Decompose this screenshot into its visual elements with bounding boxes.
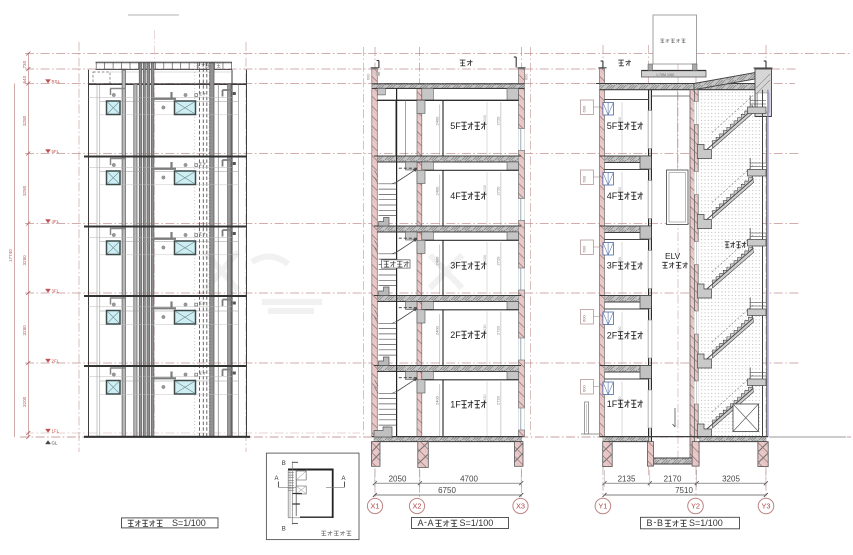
svg-text:3280: 3280 — [22, 325, 27, 336]
svg-text:2400: 2400 — [435, 325, 440, 335]
svg-text:5F: 5F — [450, 121, 461, 131]
svg-text:600: 600 — [582, 245, 587, 252]
svg-text:2720: 2720 — [496, 186, 501, 196]
svg-text:600: 600 — [582, 175, 587, 182]
svg-text:RSL: RSL — [52, 79, 61, 84]
svg-text:X2: X2 — [412, 501, 421, 510]
svg-text:B: B — [647, 518, 653, 528]
svg-text:640: 640 — [22, 75, 27, 83]
svg-text:17740: 17740 — [8, 249, 13, 262]
svg-text:A: A — [342, 476, 346, 482]
svg-text:2170: 2170 — [664, 475, 682, 484]
svg-text:Y1: Y1 — [598, 501, 607, 510]
svg-text:GL: GL — [52, 441, 58, 446]
svg-text:X3: X3 — [516, 501, 525, 510]
svg-text:3200: 3200 — [22, 396, 27, 407]
svg-text:600: 600 — [367, 74, 371, 80]
svg-text:3280: 3280 — [22, 255, 27, 266]
svg-text:4FL: 4FL — [52, 219, 60, 224]
svg-text:Y2: Y2 — [691, 501, 700, 510]
svg-text:S=1/100: S=1/100 — [689, 518, 723, 528]
svg-text:5FL: 5FL — [52, 149, 60, 154]
svg-text:2720: 2720 — [496, 325, 501, 335]
svg-text:2135: 2135 — [618, 475, 636, 484]
svg-text:3280: 3280 — [22, 185, 27, 196]
svg-text:A: A — [275, 476, 279, 482]
svg-text:3F: 3F — [450, 261, 461, 271]
svg-text:1.70M 1/50: 1.70M 1/50 — [656, 73, 674, 77]
svg-text:A: A — [418, 518, 424, 528]
svg-text:3280: 3280 — [22, 115, 27, 126]
svg-text:600: 600 — [582, 385, 587, 392]
svg-text:2400: 2400 — [435, 395, 440, 405]
svg-text:3F: 3F — [607, 261, 618, 271]
svg-text:Y3: Y3 — [761, 501, 770, 510]
svg-text:4F: 4F — [450, 191, 461, 201]
svg-text:B: B — [282, 461, 286, 467]
svg-text:2400: 2400 — [435, 186, 440, 196]
svg-text:B: B — [657, 518, 663, 528]
svg-text:4F: 4F — [607, 191, 618, 201]
svg-text:600: 600 — [525, 74, 529, 80]
svg-text:600: 600 — [582, 105, 587, 112]
svg-text:2050: 2050 — [389, 475, 407, 484]
svg-text:1F: 1F — [450, 399, 461, 409]
svg-text:2400: 2400 — [435, 116, 440, 126]
svg-text:2400: 2400 — [435, 256, 440, 266]
svg-text:6750: 6750 — [438, 486, 456, 495]
svg-text:2600: 2600 — [618, 117, 622, 125]
svg-text:A: A — [428, 518, 434, 528]
svg-text:7510: 7510 — [675, 486, 693, 495]
svg-text:2F: 2F — [607, 330, 618, 340]
svg-text:2720: 2720 — [496, 256, 501, 266]
svg-text:2600: 2600 — [618, 187, 622, 195]
svg-text:2600: 2600 — [618, 257, 622, 265]
svg-text:600: 600 — [582, 315, 587, 322]
svg-text:2720: 2720 — [496, 116, 501, 126]
svg-text:X1: X1 — [370, 501, 379, 510]
svg-text:2720: 2720 — [496, 395, 501, 405]
svg-text:1F: 1F — [607, 399, 618, 409]
svg-text:2F: 2F — [450, 330, 461, 340]
svg-text:3205: 3205 — [722, 475, 740, 484]
svg-text:730: 730 — [22, 60, 27, 68]
svg-text:4700: 4700 — [460, 475, 478, 484]
svg-text:2FL: 2FL — [52, 359, 60, 364]
svg-text:5F: 5F — [607, 121, 618, 131]
svg-text:3FL: 3FL — [52, 289, 60, 294]
svg-text:B: B — [282, 527, 286, 533]
svg-text:2600: 2600 — [618, 327, 622, 335]
svg-text:S=1/100: S=1/100 — [460, 518, 494, 528]
svg-text:S=1/100: S=1/100 — [172, 518, 206, 528]
svg-text:ELV: ELV — [665, 251, 681, 261]
svg-text:1FL: 1FL — [52, 429, 60, 434]
